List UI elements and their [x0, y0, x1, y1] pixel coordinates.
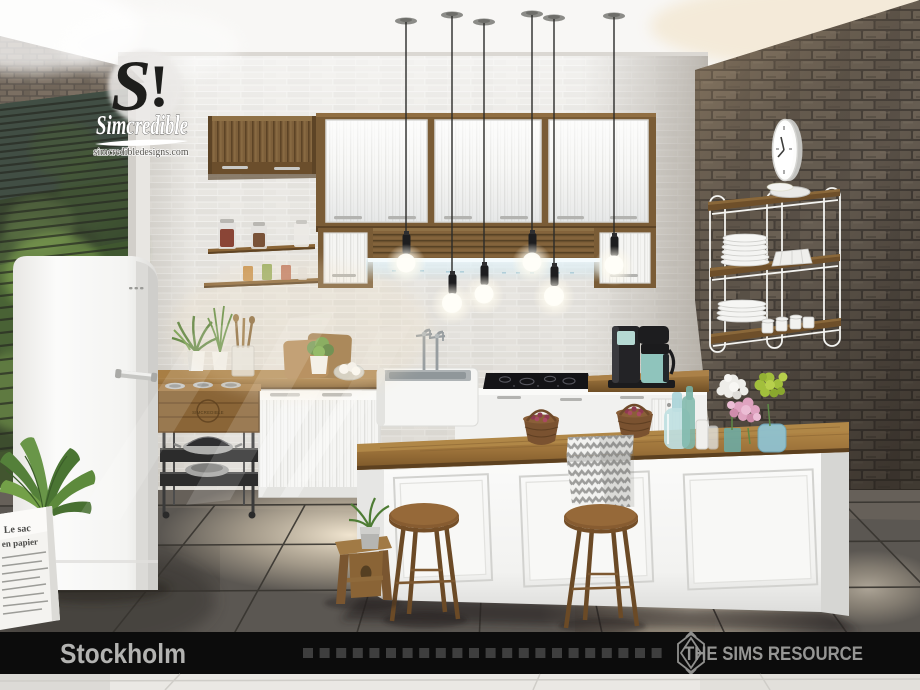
svg-text:Simcredible: Simcredible: [96, 110, 188, 140]
svg-text:Le sac: Le sac: [3, 523, 31, 536]
svg-text:THE SIMS RESOURCE: THE SIMS RESOURCE: [684, 643, 863, 665]
svg-text:SIMCREDIBLE: SIMCREDIBLE: [192, 410, 224, 415]
svg-text:Stockholm: Stockholm: [60, 638, 186, 669]
svg-text:simcredibledesigns.com: simcredibledesigns.com: [94, 147, 189, 158]
